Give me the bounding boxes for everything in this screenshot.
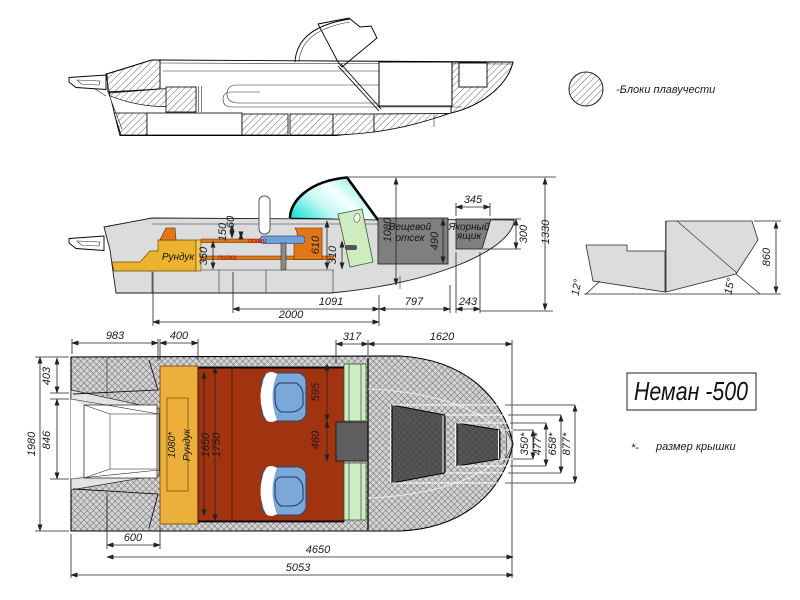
svg-text:1080: 1080 [382,217,394,242]
svg-text:860: 860 [761,247,773,266]
svg-text:1091: 1091 [319,296,343,308]
svg-text:490: 490 [429,231,441,250]
svg-text:403: 403 [41,366,53,385]
svg-text:350: 350 [198,246,210,265]
svg-text:1980: 1980 [26,431,38,456]
svg-text:4650: 4650 [306,544,331,556]
svg-text:877*: 877* [561,432,573,455]
svg-text:12°: 12° [570,278,585,297]
svg-text:15°: 15° [722,276,737,295]
svg-text:-Блоки плавучести: -Блоки плавучести [616,84,715,96]
svg-text:2000: 2000 [278,309,304,321]
svg-text:1330: 1330 [540,219,552,244]
svg-text:ящик: ящик [456,231,482,242]
svg-text:Вещевой: Вещевой [389,222,432,233]
svg-text:1080*: 1080* [167,431,178,458]
svg-text:797: 797 [405,296,424,308]
svg-text:310: 310 [327,245,339,264]
svg-text:460: 460 [310,430,322,449]
svg-text:317: 317 [343,331,362,343]
svg-text:5053: 5053 [286,562,311,574]
svg-text:полка: полка [218,255,237,262]
svg-text:983: 983 [106,330,125,342]
svg-text:Рундук: Рундук [162,252,196,263]
svg-text:595: 595 [310,382,322,401]
svg-text:610: 610 [310,235,322,254]
svg-text:размер крышки: размер крышки [655,441,736,453]
svg-text:1620: 1620 [430,331,455,343]
svg-text:600: 600 [124,532,143,544]
svg-text:*-: *- [631,442,639,454]
svg-text:1750: 1750 [211,432,223,457]
svg-text:477*: 477* [532,432,544,455]
svg-text:658*: 658* [547,432,559,455]
svg-text:60: 60 [225,215,237,228]
svg-text:846: 846 [41,430,53,449]
svg-text:350*: 350* [519,432,531,455]
svg-text:400: 400 [170,330,189,342]
svg-text:полки: полки [248,238,267,245]
svg-text:300: 300 [518,224,530,243]
svg-text:Неман -500: Неман -500 [634,376,748,406]
svg-text:Рундук: Рундук [182,428,193,462]
svg-text:отсек: отсек [395,233,425,244]
svg-text:243: 243 [458,296,478,308]
svg-text:345: 345 [464,194,483,206]
